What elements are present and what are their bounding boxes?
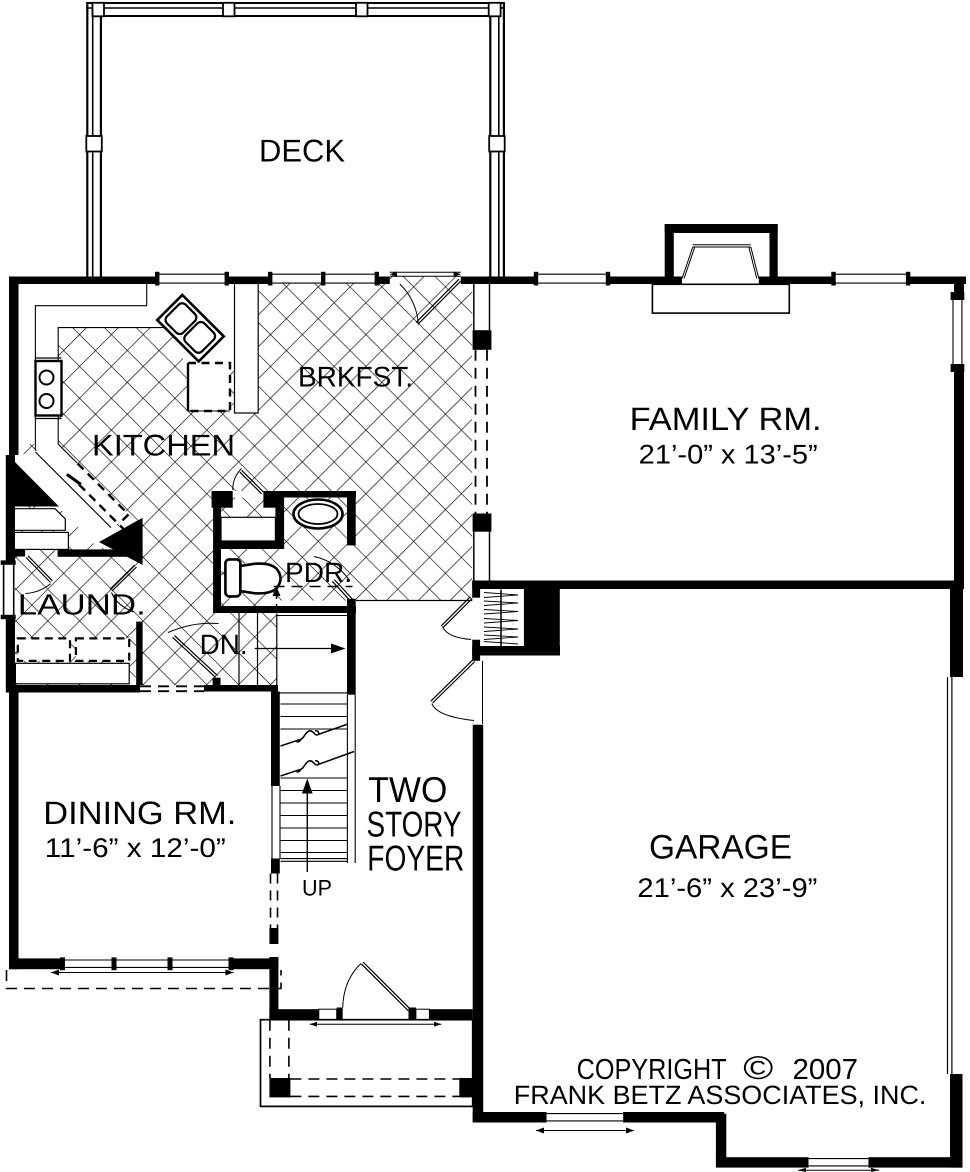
- svg-text:FRANK BETZ ASSOCIATES, INC.: FRANK BETZ ASSOCIATES, INC.: [514, 1080, 927, 1110]
- svg-text:BRKFST.: BRKFST.: [298, 362, 413, 394]
- svg-text:DN.: DN.: [200, 629, 248, 660]
- svg-text:DECK: DECK: [259, 133, 345, 169]
- svg-text:DINING RM.: DINING RM.: [43, 795, 236, 831]
- svg-text:21’-6” x 23’-9”: 21’-6” x 23’-9”: [637, 873, 817, 903]
- svg-text:FOYER: FOYER: [367, 837, 464, 878]
- svg-text:UP: UP: [302, 876, 332, 901]
- svg-text:GARAGE: GARAGE: [649, 828, 792, 866]
- svg-text:FAMILY RM.: FAMILY RM.: [630, 401, 822, 437]
- svg-text:21’-0” x 13’-5”: 21’-0” x 13’-5”: [639, 439, 818, 469]
- svg-text:LAUND.: LAUND.: [18, 589, 146, 622]
- svg-text:PDR.: PDR.: [285, 557, 352, 588]
- svg-text:KITCHEN: KITCHEN: [92, 430, 235, 463]
- svg-text:11’-6” x 12’-0”: 11’-6” x 12’-0”: [45, 833, 226, 863]
